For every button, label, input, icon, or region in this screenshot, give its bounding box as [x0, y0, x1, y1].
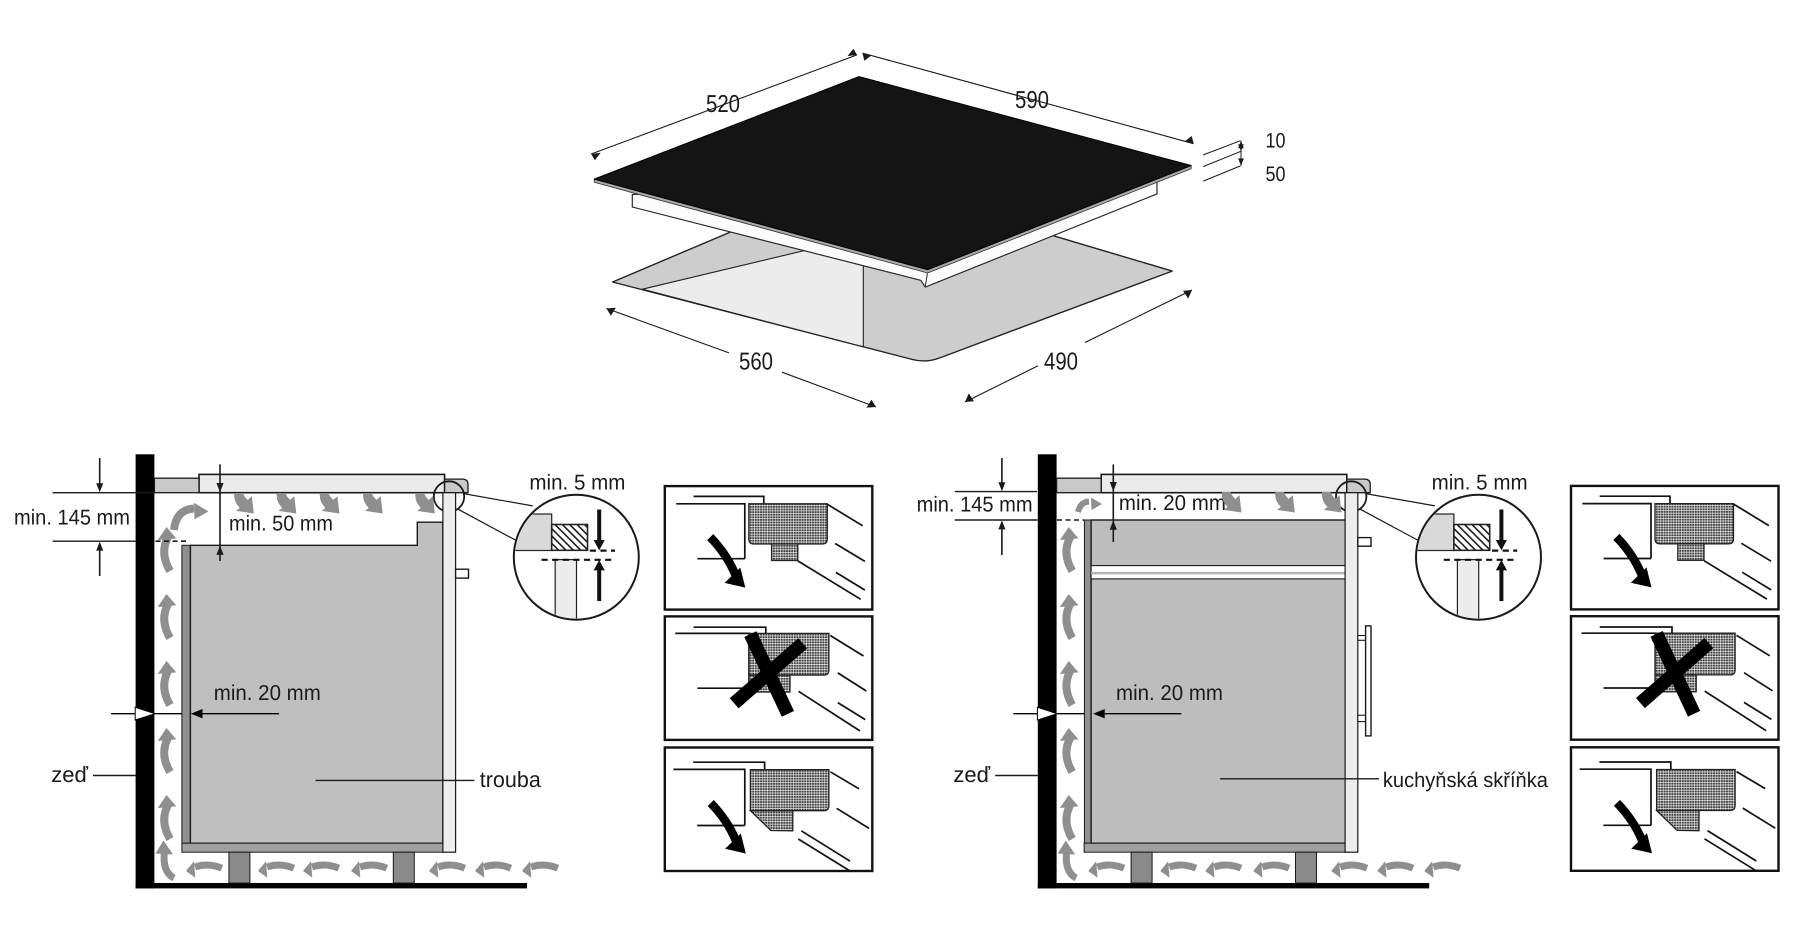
svg-text:560: 560 — [739, 349, 773, 376]
svg-text:590: 590 — [1015, 87, 1049, 114]
svg-text:min. 145 mm: min. 145 mm — [917, 493, 1033, 517]
svg-text:10: 10 — [1266, 130, 1286, 153]
svg-text:min. 50 mm: min. 50 mm — [229, 512, 333, 536]
svg-text:zeď: zeď — [953, 762, 990, 787]
svg-text:min. 145 mm: min. 145 mm — [14, 506, 130, 530]
svg-text:trouba: trouba — [480, 767, 542, 792]
svg-text:kuchyňská skříňka: kuchyňská skříňka — [1383, 769, 1548, 792]
svg-text:min. 20 mm: min. 20 mm — [214, 681, 321, 705]
svg-text:490: 490 — [1044, 349, 1078, 376]
svg-text:min. 20 mm: min. 20 mm — [1119, 491, 1226, 515]
svg-text:520: 520 — [706, 91, 740, 118]
svg-text:50: 50 — [1266, 163, 1286, 186]
svg-text:zeď: zeď — [51, 762, 88, 787]
svg-text:min. 20 mm: min. 20 mm — [1116, 681, 1223, 705]
